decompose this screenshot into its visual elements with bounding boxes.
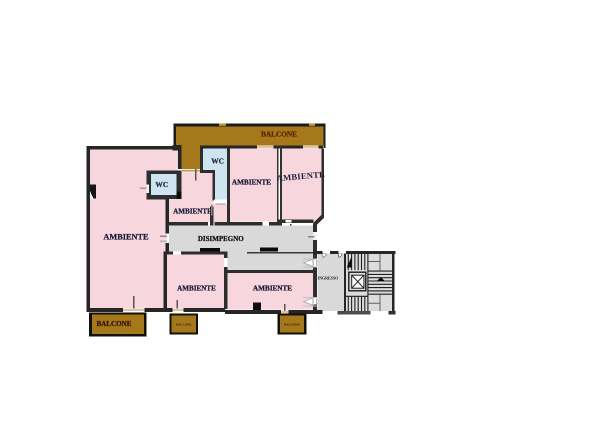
svg-text:AMBIENTE: AMBIENTE [232,179,271,187]
svg-text:WC: WC [155,180,168,189]
svg-text:WC: WC [211,157,224,166]
svg-text:AMBIENTE: AMBIENTE [177,285,216,293]
svg-text:BALCONE: BALCONE [261,130,297,139]
svg-text:BALCONE: BALCONE [96,320,131,328]
svg-text:BALCONE: BALCONE [176,322,192,326]
svg-text:BALCONE: BALCONE [284,322,300,326]
svg-text:DISIMPEGNO: DISIMPEGNO [198,235,244,243]
svg-text:INGRESSO: INGRESSO [318,275,339,280]
svg-text:AMBIENTE: AMBIENTE [103,232,149,241]
svg-text:AMBIENTE: AMBIENTE [253,285,292,293]
svg-text:AMBIENTE: AMBIENTE [173,207,212,215]
